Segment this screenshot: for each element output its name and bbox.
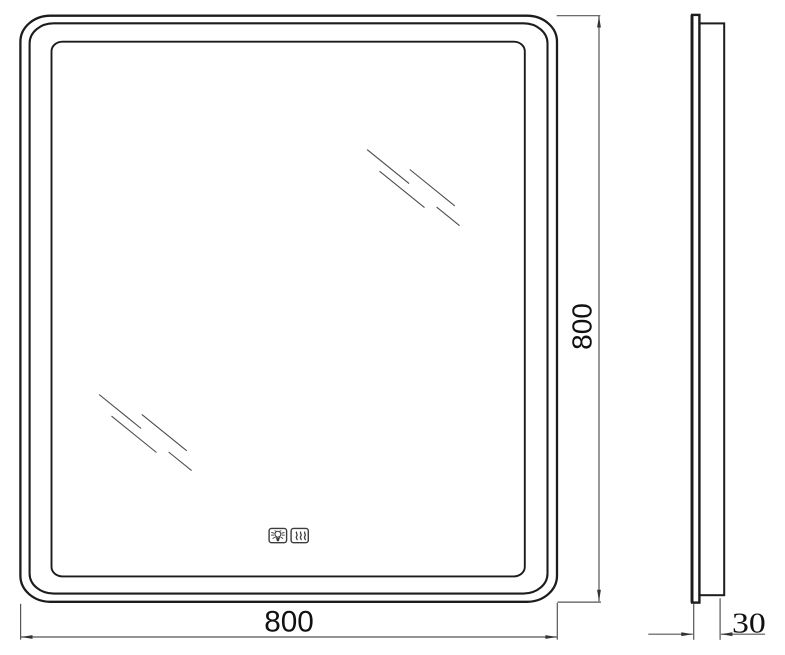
svg-text:800: 800 [567, 303, 598, 350]
svg-text:800: 800 [264, 606, 314, 639]
svg-text:30: 30 [732, 607, 766, 639]
